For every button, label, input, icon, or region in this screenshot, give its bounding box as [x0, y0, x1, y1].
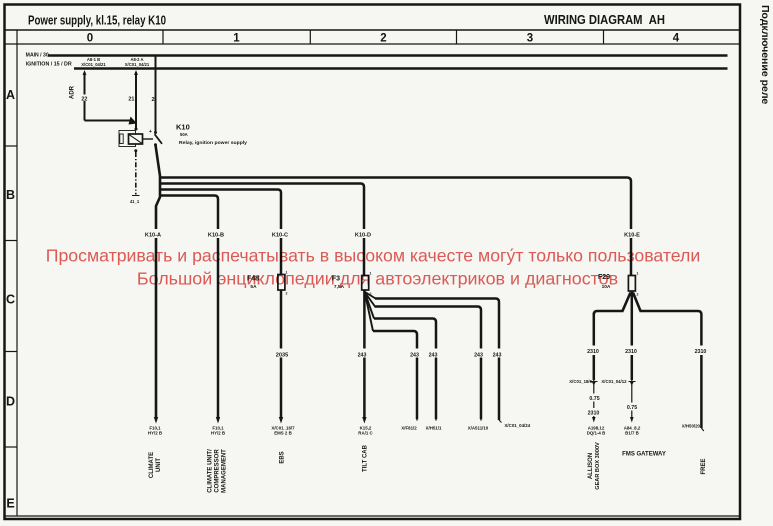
svg-text:X/H50/20: X/H50/20	[682, 424, 701, 429]
svg-text:K10-E: K10-E	[624, 233, 640, 239]
svg-text:MAIN / 30: MAIN / 30	[26, 52, 49, 58]
svg-text:2310: 2310	[625, 349, 637, 355]
svg-text:TILT CAB: TILT CAB	[363, 444, 369, 472]
svg-text:A: A	[6, 88, 15, 102]
svg-text:243: 243	[474, 353, 483, 359]
svg-text:CLIMATE UNIT/: CLIMATE UNIT/	[208, 449, 214, 493]
svg-text:X/C01_04/24: X/C01_04/24	[505, 423, 531, 428]
svg-text:243: 243	[493, 353, 502, 359]
svg-text:FREE: FREE	[701, 458, 707, 474]
svg-text:2310: 2310	[695, 349, 707, 355]
svg-text:C: C	[6, 293, 15, 307]
svg-text:EBS: EBS	[280, 451, 286, 463]
svg-text:243: 243	[429, 353, 438, 359]
svg-text:B: B	[6, 188, 15, 202]
svg-text:ADR: ADR	[70, 85, 76, 99]
svg-text:HY/2 B: HY/2 B	[148, 431, 162, 436]
svg-text:X/A511/10: X/A511/10	[468, 426, 489, 431]
svg-text:FMS GATEWAY: FMS GATEWAY	[622, 452, 666, 458]
svg-text:Power supply, kl.15, relay K10: Power supply, kl.15, relay K10	[28, 14, 166, 28]
svg-text:50A: 50A	[180, 132, 188, 137]
svg-text:X/C01_04/12: X/C01_04/12	[601, 379, 627, 384]
svg-text:IGNITION / 15 / DR: IGNITION / 15 / DR	[26, 61, 72, 67]
svg-text:WIRING DIAGRAM AH: WIRING DIAGRAM AH	[544, 13, 665, 27]
svg-text:2: 2	[151, 97, 154, 103]
svg-text:2: 2	[637, 293, 639, 297]
svg-text:D: D	[6, 395, 15, 409]
svg-text:41_1: 41_1	[130, 199, 140, 204]
svg-text:UNIT: UNIT	[156, 458, 162, 472]
svg-text:0.75: 0.75	[627, 405, 637, 411]
svg-text:2310: 2310	[587, 349, 599, 355]
svg-text:1: 1	[233, 33, 240, 45]
svg-text:2035: 2035	[276, 353, 288, 359]
svg-text:Подключение реле: Подключение реле	[759, 5, 771, 104]
svg-text:22: 22	[81, 97, 87, 103]
svg-text:+: +	[149, 129, 152, 135]
svg-text:4: 4	[673, 33, 680, 45]
svg-text:K10: K10	[176, 123, 190, 132]
svg-text:K10-A: K10-A	[145, 233, 161, 239]
svg-text:COMPRESSOR: COMPRESSOR	[215, 449, 221, 493]
svg-text:Relay, ignition power supply: Relay, ignition power supply	[179, 140, 248, 145]
svg-text:X/C01_04/21: X/C01_04/21	[125, 62, 150, 67]
svg-text:243: 243	[358, 353, 367, 359]
svg-text:2: 2	[286, 292, 288, 296]
svg-text:K10-D: K10-D	[355, 233, 371, 239]
svg-text:DQ/1-4 B: DQ/1-4 B	[587, 431, 606, 436]
svg-text:X/C01_18/6: X/C01_18/6	[569, 379, 592, 384]
svg-text:E: E	[6, 497, 14, 511]
svg-text:ALLISON: ALLISON	[588, 453, 594, 479]
svg-text:EMS 2 B: EMS 2 B	[274, 431, 292, 436]
svg-text:2310: 2310	[588, 411, 600, 417]
svg-text:GEAR BOX 3000V: GEAR BOX 3000V	[595, 442, 601, 490]
svg-text:X/H51/1: X/H51/1	[426, 426, 442, 431]
svg-text:B1/7 B: B1/7 B	[625, 431, 639, 436]
svg-text:0: 0	[87, 33, 93, 45]
svg-text:0.75: 0.75	[589, 396, 599, 402]
svg-text:2: 2	[380, 33, 386, 45]
svg-text:CLIMATE: CLIMATE	[149, 452, 155, 478]
svg-text:3: 3	[527, 33, 533, 45]
svg-text:243: 243	[410, 353, 419, 359]
svg-text:RA/1 C: RA/1 C	[358, 431, 373, 436]
svg-text:Большой энциклопедии для автоэ: Большой энциклопедии для автоэлектриков …	[137, 269, 618, 289]
svg-text:21: 21	[128, 97, 134, 103]
svg-text:K10-B: K10-B	[208, 233, 224, 239]
svg-text:MANAGEMENT: MANAGEMENT	[222, 449, 228, 493]
svg-text:X/F81/2: X/F81/2	[401, 426, 417, 431]
svg-text:K10-C: K10-C	[272, 233, 288, 239]
svg-text:X/C01_04/21: X/C01_04/21	[81, 62, 106, 67]
svg-text:HY/2 B: HY/2 B	[211, 431, 225, 436]
svg-text:Просматривать и распечатывать: Просматривать и распечатывать в высоком …	[46, 246, 701, 266]
svg-text:1: 1	[637, 272, 639, 276]
